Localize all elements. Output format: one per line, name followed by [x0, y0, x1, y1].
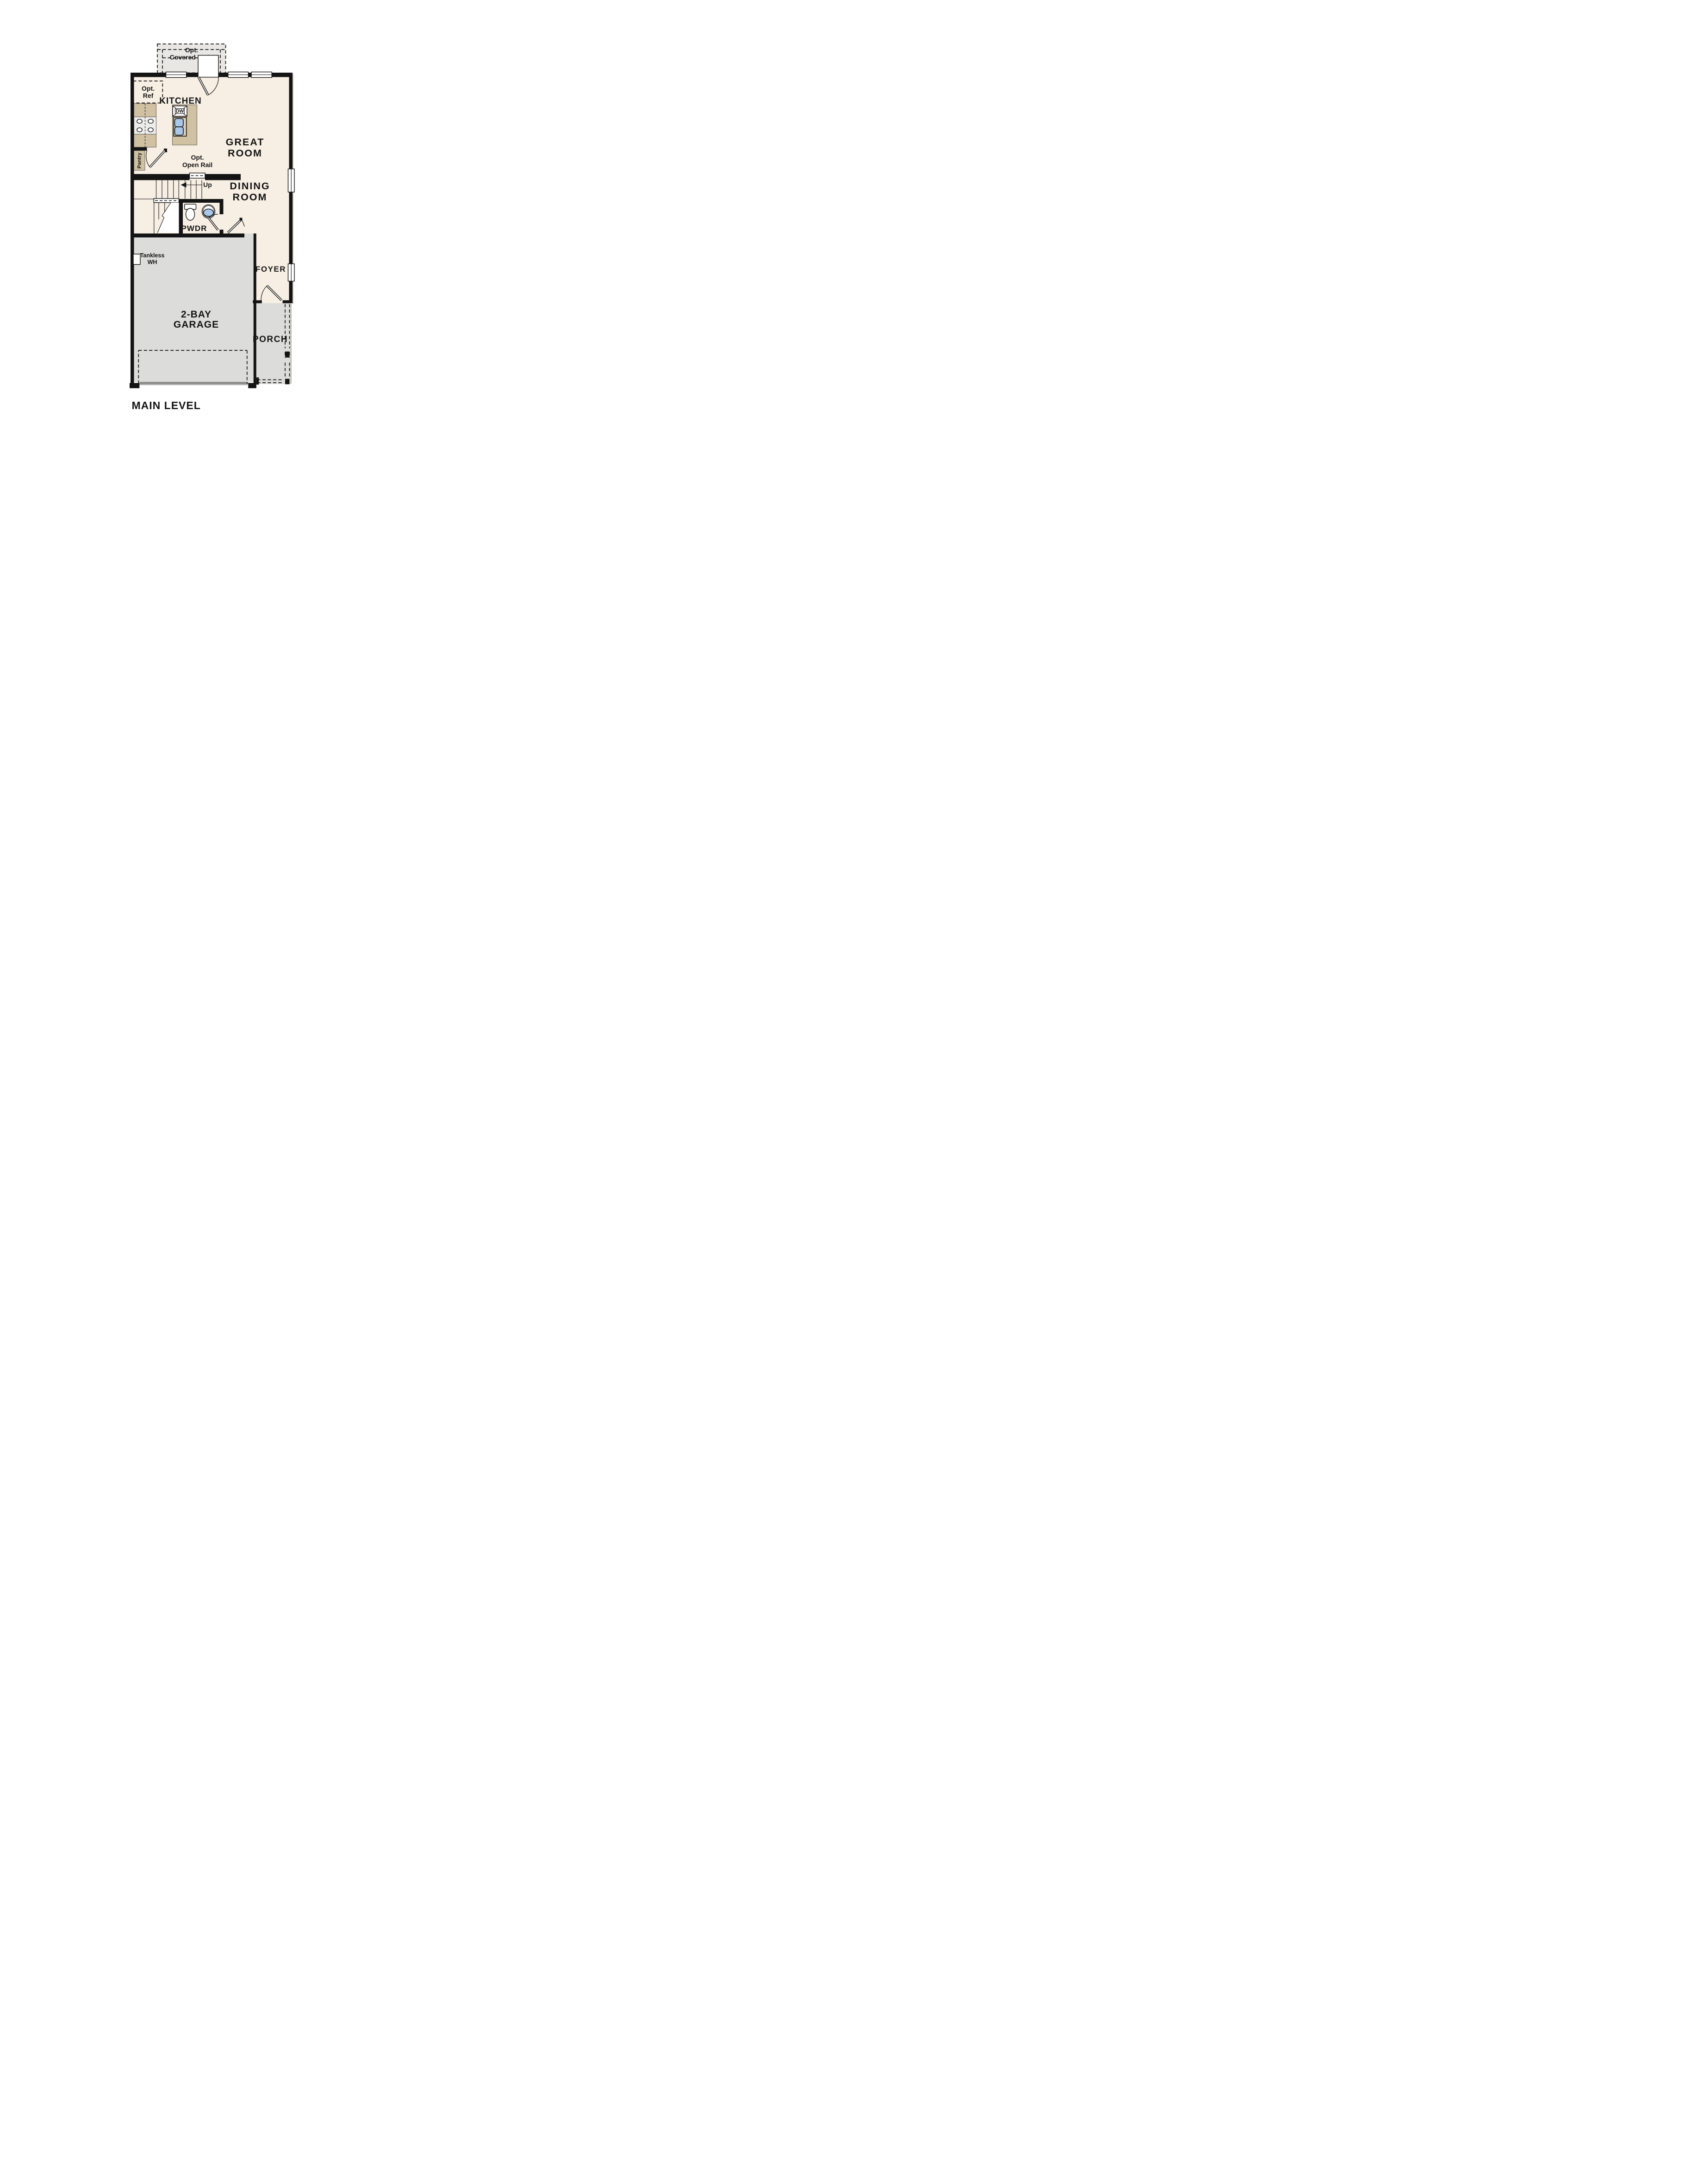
garage-doorway-floor [244, 234, 254, 238]
wall-top-mullion [249, 73, 252, 77]
wall-garage-top [134, 234, 245, 238]
wall-stairs-top-1 [134, 174, 190, 180]
dishwasher-label: DW [175, 109, 184, 114]
patio-label-line1: Opt. [185, 46, 198, 54]
wall-right-2 [289, 192, 293, 264]
dishwasher: DW [173, 106, 187, 117]
wall-front-2 [283, 300, 293, 304]
garage-apron [139, 382, 248, 385]
up-label: Up [203, 181, 212, 188]
wall-garage-right [254, 234, 256, 388]
window-foyer [288, 264, 295, 281]
sink-basin-2 [175, 127, 184, 135]
patio-door-panel [198, 56, 218, 77]
dining-room-label-line2: ROOM [233, 192, 268, 203]
wall-pwdr-top [179, 199, 224, 203]
porch-post-corner [285, 379, 290, 385]
wall-pantry-stub [134, 147, 147, 151]
great-room-label-line1: GREAT [226, 137, 265, 148]
wall-top-2 [187, 73, 198, 77]
kitchen-island: DW [173, 105, 197, 145]
water-heater-unit [133, 254, 140, 265]
burner [148, 128, 153, 132]
stove [134, 117, 156, 135]
open-rail-mid [154, 199, 179, 203]
window-kitchen [166, 72, 187, 78]
garage-post-left [130, 383, 139, 388]
sink-basin-1 [175, 118, 184, 127]
window-dining [288, 169, 295, 192]
floor-plan: Opt. Covered Patio [0, 0, 422, 546]
great-room-label-line2: ROOM [228, 148, 262, 159]
kitchen-label: KITCHEN [159, 96, 201, 106]
powder-sink [202, 205, 215, 218]
garage-label-line2: GARAGE [174, 319, 219, 330]
open-rail-top [190, 173, 206, 178]
porch-post-mid [285, 352, 290, 358]
garage-entry-door-hinge-post [240, 218, 243, 221]
open-rail-label-line2: Open Rail [182, 161, 212, 168]
dining-room-label-line1: DINING [230, 180, 270, 192]
burner [137, 119, 142, 124]
porch-post-left [256, 378, 259, 385]
wall-stairs-top-2 [205, 174, 241, 180]
window-great-room-1 [228, 72, 249, 78]
wall-right-3 [289, 281, 293, 304]
wall-top-1 [131, 73, 166, 77]
wall-right-1 [289, 73, 293, 169]
garage-label-line1: 2-BAY [181, 309, 212, 320]
plan-title: MAIN LEVEL [132, 399, 201, 411]
wall-left [131, 73, 134, 388]
wall-pwdr-right [220, 199, 224, 214]
foyer-label: FOYER [255, 265, 286, 274]
tankless-label-line1: Tankless [140, 252, 165, 259]
garage-shadow-bottom [139, 385, 248, 386]
floor-plan-page: Opt. Covered Patio [0, 0, 422, 546]
burner [137, 128, 142, 132]
pantry-label: Pantry [137, 152, 143, 168]
powder-room-label: PWDR [181, 224, 207, 233]
garage-post-right [248, 383, 256, 388]
island-sink [174, 118, 187, 137]
porch-label: PORCH [253, 335, 288, 344]
wall-pwdr-right-stub [220, 230, 224, 237]
burner [148, 119, 153, 124]
opt-ref-label-line1: Opt. [142, 85, 155, 92]
opt-ref-label-line2: Ref [143, 92, 154, 100]
wall-top-3 [218, 73, 228, 77]
open-rail-label-line1: Opt. [191, 154, 204, 161]
window-great-room-2 [251, 72, 272, 78]
tankless-label-line2: WH [148, 259, 157, 266]
